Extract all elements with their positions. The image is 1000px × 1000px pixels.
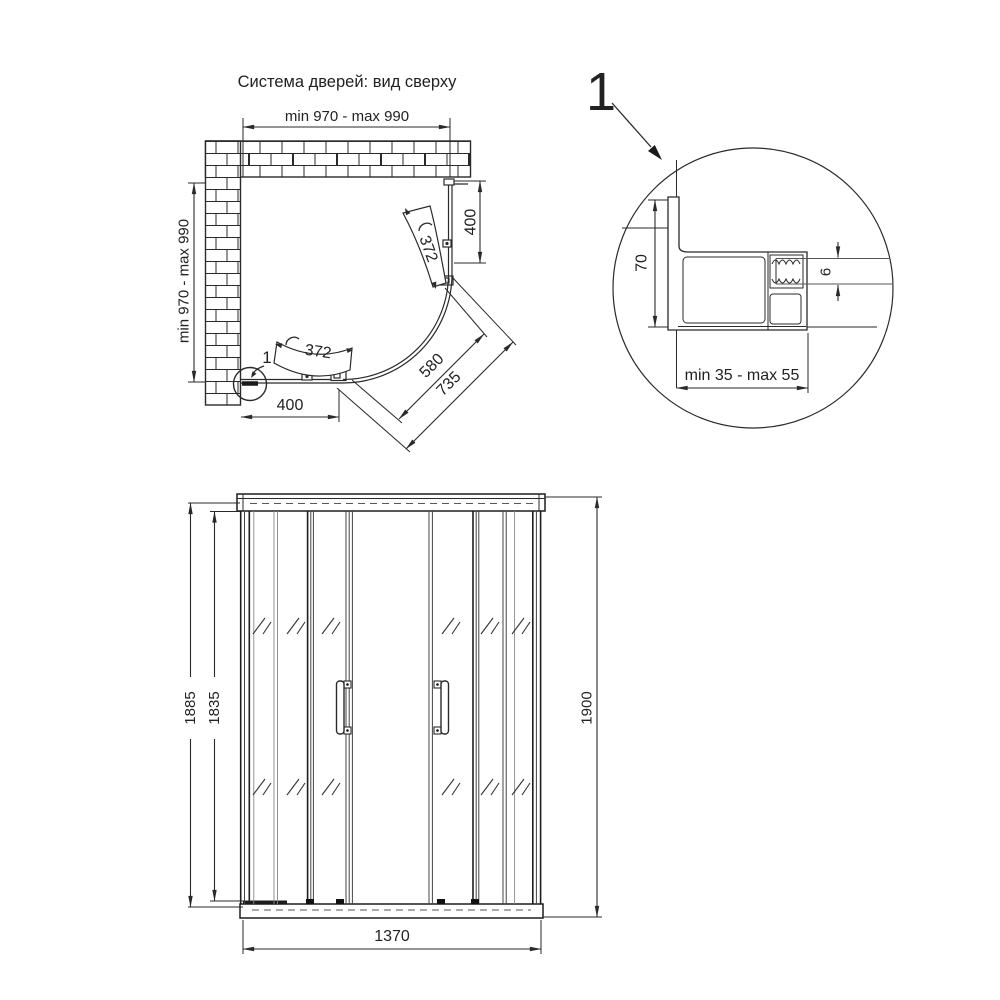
dim-height-total: 1900 <box>543 497 602 917</box>
dim-opening-depth-label: min 970 - max 990 <box>176 219 193 343</box>
brick-wall-top <box>206 141 471 177</box>
dim-adjust-range-label: min 35 - max 55 <box>685 367 800 384</box>
dim-diagonals: 580 735 <box>337 277 516 452</box>
detail-callout-number: 1 <box>586 62 616 122</box>
glass-hatch-marks <box>253 618 530 795</box>
sliding-door-lower: 372 <box>274 337 353 376</box>
dim-width-total: 1370 <box>243 920 541 954</box>
glass-panel-edges <box>241 511 541 904</box>
dim-height-inner: 1835 <box>206 512 250 902</box>
dim-adjust-range: min 35 - max 55 <box>677 333 809 393</box>
dim-left-panel-label: 400 <box>277 397 304 414</box>
dim-height-outer-label: 1885 <box>182 691 199 724</box>
top-view-title: Система дверей: вид сверху <box>238 73 458 91</box>
dim-profile-depth: 70 <box>634 200 669 327</box>
front-view: 1885 1835 1900 1370 <box>182 494 602 954</box>
dim-height-total-label: 1900 <box>579 691 596 724</box>
door-handle-right <box>434 681 449 734</box>
dim-height-inner-label: 1835 <box>206 691 223 724</box>
profile-section <box>622 160 877 388</box>
sliding-door-upper: 372 <box>403 206 446 289</box>
dim-profile-depth-label: 70 <box>634 254 651 272</box>
technical-drawing-canvas: Система дверей: вид сверху <box>0 0 1000 1000</box>
callout-number: 1 <box>262 348 271 367</box>
brick-wall-left <box>206 141 241 405</box>
dim-glass-thickness-label: 6 <box>818 268 835 276</box>
top-rail <box>237 494 545 511</box>
dim-left-panel: 400 <box>241 390 339 422</box>
dim-width-total-label: 1370 <box>374 928 410 945</box>
top-view: Система дверей: вид сверху <box>176 73 517 452</box>
detail-leader-arrow <box>648 145 662 160</box>
detail-view: 1 70 6 <box>586 62 893 428</box>
dim-right-panel: 400 <box>454 181 486 263</box>
detail-leader-line <box>612 103 651 147</box>
drawing-sheet: Система дверей: вид сверху <box>0 0 1000 1000</box>
dim-glass-thickness: 6 <box>818 242 839 301</box>
dim-opening-depth: min 970 - max 990 <box>176 183 207 382</box>
dim-right-panel-label: 400 <box>463 209 480 236</box>
dim-opening-width-label: min 970 - max 990 <box>285 108 409 125</box>
bottom-rail <box>240 902 543 918</box>
arc-symbol-lower <box>286 337 299 345</box>
